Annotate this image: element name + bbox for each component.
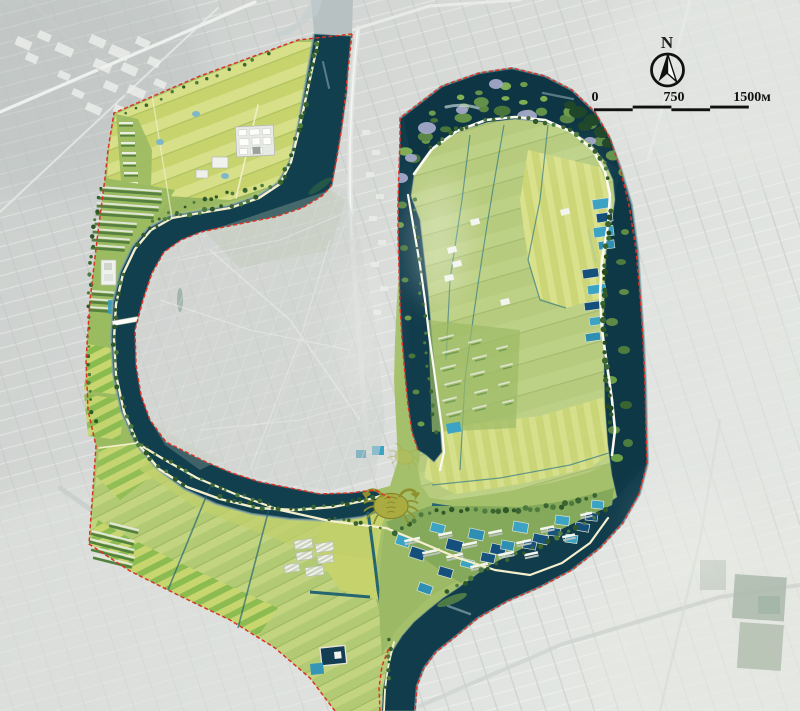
svg-text:1500м: 1500м: [733, 90, 771, 105]
svg-text:N: N: [661, 33, 674, 52]
svg-text:0: 0: [592, 90, 599, 105]
svg-text:750: 750: [664, 90, 685, 105]
